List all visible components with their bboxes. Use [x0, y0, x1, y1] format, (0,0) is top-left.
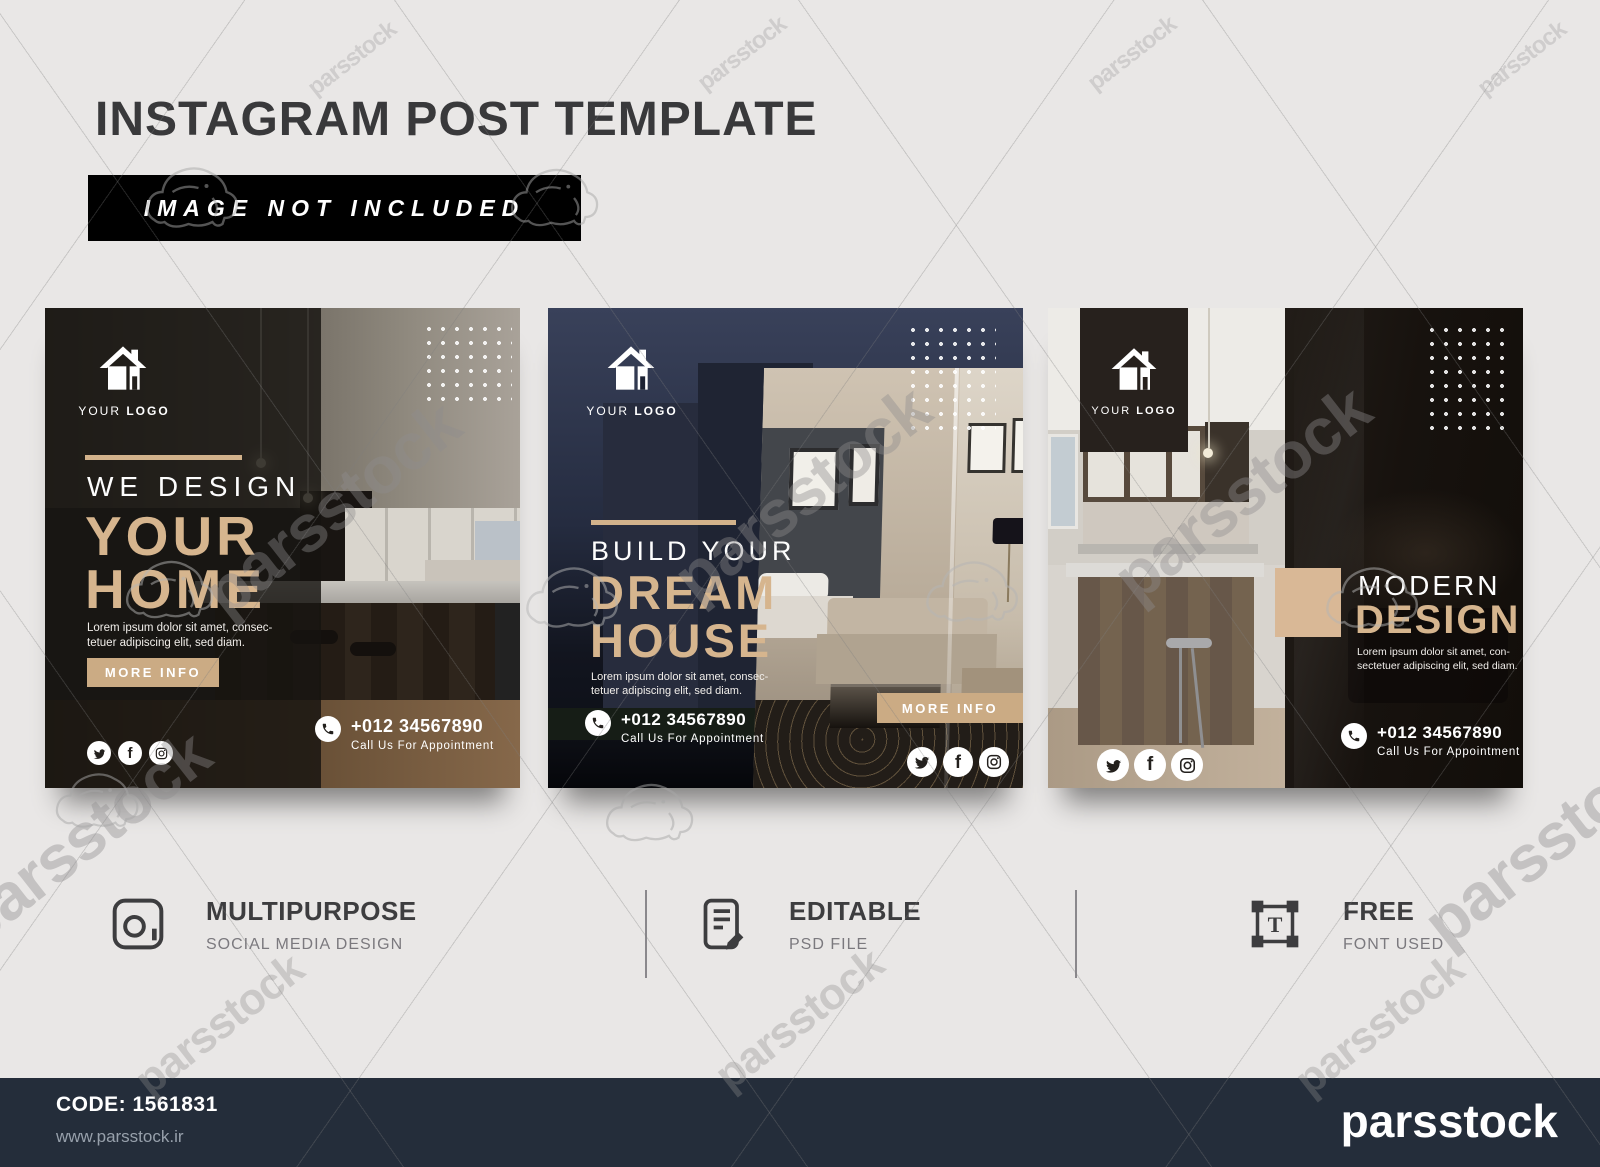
svg-text:T: T	[1268, 912, 1283, 937]
facebook-icon[interactable]: f	[1134, 749, 1166, 781]
body-line: tetuer adipiscing elit, sed diam.	[591, 684, 768, 698]
logo-block: YOUR LOGO	[1080, 308, 1188, 452]
card-kicker: BUILD YOUR	[591, 536, 796, 567]
body-line: tetuer adipiscing elit, sed diam.	[87, 636, 272, 651]
card-title-line1: DREAM	[590, 565, 777, 620]
photo-shape	[848, 444, 880, 506]
contact-block: +012 34567890 Call Us For Appointment	[1341, 723, 1520, 758]
feature-free-font: T FREE FONT USED	[1247, 896, 1444, 954]
dot-grid-decoration	[1425, 323, 1513, 435]
social-icons-row: f	[1097, 749, 1203, 781]
logo-word-your: YOUR	[586, 404, 629, 418]
post-card-build-your-dream-house: YOUR LOGO BUILD YOUR DREAM HOUSE Lorem i…	[548, 308, 1023, 788]
your-logo-label: YOUR LOGO	[1088, 405, 1180, 417]
social-icons-row: f	[87, 741, 173, 765]
accent-square	[1275, 568, 1341, 637]
facebook-icon[interactable]: f	[943, 747, 973, 777]
image-not-included-banner: IMAGE NOT INCLUDED	[88, 175, 581, 241]
photo-shape	[1078, 544, 1258, 554]
phone-caption: Call Us For Appointment	[621, 733, 764, 745]
stock-preview-page: INSTAGRAM POST TEMPLATE IMAGE NOT INCLUD…	[0, 0, 1600, 1167]
photo-shape	[1066, 563, 1264, 577]
parsstock-logo: parsstock	[1341, 1094, 1558, 1148]
accent-divider	[85, 455, 242, 460]
phone-icon	[1341, 723, 1367, 749]
text-frame-icon: T	[1247, 896, 1303, 952]
feature-subtitle: FONT USED	[1343, 936, 1444, 954]
feature-subtitle: SOCIAL MEDIA DESIGN	[206, 936, 417, 954]
website-link[interactable]: www.parsstock.ir	[56, 1127, 184, 1147]
facebook-icon[interactable]: f	[118, 741, 142, 765]
phone-number: +012 34567890	[351, 716, 494, 737]
footer-bar: CODE: 1561831 www.parsstock.ir parsstock	[0, 1078, 1600, 1167]
watermark-text: parsstock	[692, 11, 791, 97]
feature-divider	[1075, 890, 1077, 978]
camera-frame-icon	[110, 896, 166, 952]
logo-word-your: YOUR	[78, 404, 121, 418]
photo-shape	[1294, 308, 1364, 788]
photo-shape	[1166, 638, 1212, 648]
feature-title: EDITABLE	[789, 896, 921, 927]
more-info-button[interactable]: MORE INFO	[877, 693, 1023, 723]
photo-shape	[1011, 418, 1023, 473]
logo-word-logo: LOGO	[126, 404, 169, 418]
social-icons-row: f	[907, 747, 1009, 777]
phone-icon	[315, 716, 341, 742]
contact-block: +012 34567890 Call Us For Appointment	[315, 716, 494, 752]
logo-word-logo: LOGO	[634, 404, 677, 418]
photo-shape	[1208, 308, 1210, 448]
post-card-we-design-your-home: YOUR LOGO WE DESIGN YOUR HOME Lorem ipsu…	[45, 308, 520, 788]
feature-title: FREE	[1343, 896, 1444, 927]
card-body-text: Lorem ipsum dolor sit amet, con- sectetu…	[1357, 645, 1518, 673]
house-icon	[1110, 346, 1158, 392]
contact-block: +012 34567890 Call Us For Appointment	[585, 710, 764, 745]
feature-title: MULTIPURPOSE	[206, 896, 417, 927]
photo-shape	[350, 642, 396, 656]
card-body-text: Lorem ipsum dolor sit amet, consec- tetu…	[591, 670, 768, 698]
photo-shape	[1083, 502, 1249, 544]
phone-number: +012 34567890	[1377, 723, 1520, 743]
more-info-button[interactable]: MORE INFO	[87, 658, 219, 687]
photo-shape	[1078, 577, 1254, 745]
accent-divider	[591, 520, 736, 525]
phone-caption: Call Us For Appointment	[1377, 746, 1520, 758]
logo-word-logo: LOGO	[1136, 405, 1176, 417]
body-line: Lorem ipsum dolor sit amet, consec-	[87, 621, 272, 636]
twitter-icon[interactable]	[87, 741, 111, 765]
card-body-text: Lorem ipsum dolor sit amet, consec- tetu…	[87, 621, 272, 651]
your-logo-label: YOUR LOGO	[586, 404, 678, 418]
phone-icon	[585, 710, 611, 736]
card-title-line2: HOUSE	[590, 613, 772, 668]
feature-multipurpose: MULTIPURPOSE SOCIAL MEDIA DESIGN	[110, 896, 417, 954]
page-title: INSTAGRAM POST TEMPLATE	[95, 92, 818, 147]
document-edit-icon	[697, 896, 749, 952]
photo-shape	[992, 518, 1023, 544]
watermark-text: parsstock	[1472, 16, 1571, 102]
asset-code: CODE: 1561831	[56, 1093, 218, 1117]
instagram-icon[interactable]	[979, 747, 1009, 777]
body-line: Lorem ipsum dolor sit amet, con-	[1357, 645, 1518, 659]
feature-editable: EDITABLE PSD FILE	[697, 896, 921, 954]
card-kicker: WE DESIGN	[87, 471, 301, 503]
photo-shape	[1048, 434, 1078, 529]
photo-shape	[788, 448, 840, 510]
photo-shape	[1205, 422, 1249, 502]
feature-divider	[645, 890, 647, 978]
dot-grid-decoration	[906, 323, 996, 435]
instagram-icon[interactable]	[1171, 749, 1203, 781]
logo-word-your: YOUR	[1091, 405, 1131, 417]
phone-number: +012 34567890	[621, 710, 764, 730]
post-card-modern-design: YOUR LOGO MODERN DESIGN Lorem ipsum dolo…	[1048, 308, 1523, 788]
card-title-line2: HOME	[85, 557, 266, 621]
twitter-icon[interactable]	[907, 747, 937, 777]
phone-caption: Call Us For Appointment	[351, 740, 494, 752]
your-logo-label: YOUR LOGO	[78, 404, 170, 418]
house-icon	[606, 344, 656, 392]
feature-subtitle: PSD FILE	[789, 936, 921, 954]
twitter-icon[interactable]	[1097, 749, 1129, 781]
photo-shape	[1203, 448, 1213, 458]
banner-label: IMAGE NOT INCLUDED	[144, 195, 526, 222]
house-icon	[98, 344, 148, 392]
watermark-text: parsstock	[706, 939, 894, 1101]
body-line: Lorem ipsum dolor sit amet, consec-	[591, 670, 768, 684]
instagram-icon[interactable]	[149, 741, 173, 765]
photo-shape	[1179, 648, 1182, 743]
watermark-text: parsstock	[1082, 11, 1181, 97]
card-title-line1: DESIGN	[1355, 598, 1520, 643]
dot-grid-decoration	[422, 322, 512, 408]
body-line: sectetuer adipiscing elit, sed diam.	[1357, 659, 1518, 673]
watermark-text: parsstock	[302, 16, 401, 102]
